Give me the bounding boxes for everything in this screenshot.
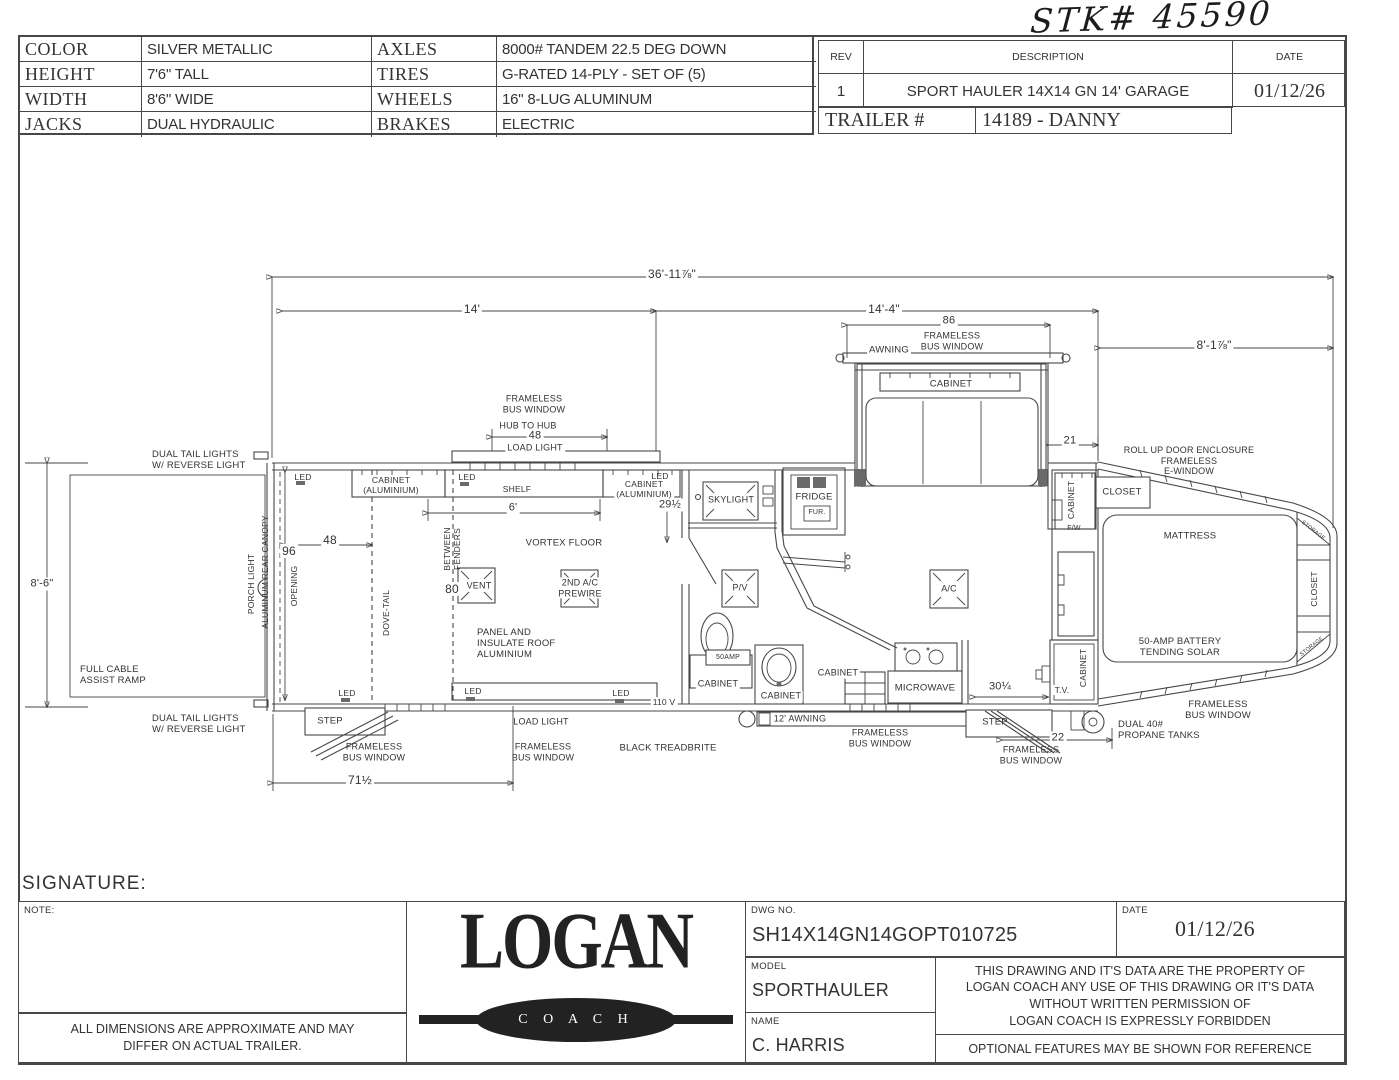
signature-label: SIGNATURE: xyxy=(22,873,147,895)
description-header: DESCRIPTION xyxy=(864,41,1233,74)
spec-label-axles: AXLES xyxy=(372,37,497,62)
note-label: NOTE: xyxy=(24,905,55,916)
logo-coach-oval: C O A C H xyxy=(476,998,676,1042)
logan-logo: LOGAN xyxy=(460,896,692,989)
spec-label-color: COLOR xyxy=(20,37,142,62)
optional-features-note: OPTIONAL FEATURES MAY BE SHOWN FOR REFER… xyxy=(935,1034,1345,1063)
disclaimer-box: ALL DIMENSIONS ARE APPROXIMATE AND MAY D… xyxy=(18,1013,407,1063)
model-label: MODEL xyxy=(751,961,786,972)
spec-label-jacks: JACKS xyxy=(20,112,142,137)
date-value: 01/12/26 xyxy=(1175,916,1255,942)
rev-description: SPORT HAULER 14X14 GN 14' GARAGE xyxy=(864,74,1233,108)
trailer-number-row: TRAILER # 14189 - DANNY xyxy=(818,107,1232,134)
date-label: DATE xyxy=(1122,905,1148,916)
spec-value-axles: 8000# TANDEM 22.5 DEG DOWN xyxy=(497,37,816,62)
spec-value-width: 8'6" WIDE xyxy=(142,87,372,112)
spec-value-brakes: ELECTRIC xyxy=(497,112,816,137)
trailer-drawing-sheet: 36'-11⅞"14'14'-4"8'-1⅞"86FRAMELESS BUS W… xyxy=(0,0,1399,1080)
model-cell: MODEL SPORTHAULER xyxy=(745,957,936,1013)
rev-header: REV xyxy=(819,41,864,74)
spec-value-wheels: 16" 8-LUG ALUMINUM xyxy=(497,87,816,112)
trailer-number-value: 14189 - DANNY xyxy=(976,108,1233,133)
name-value: C. HARRIS xyxy=(752,1035,845,1056)
spec-value-color: SILVER METALLIC xyxy=(142,37,372,62)
spec-label-wheels: WHEELS xyxy=(372,87,497,112)
spec-table: COLOR SILVER METALLIC AXLES 8000# TANDEM… xyxy=(18,35,814,135)
name-cell: NAME C. HARRIS xyxy=(745,1012,936,1063)
date-cell: DATE 01/12/26 xyxy=(1116,901,1345,957)
dwg-number-label: DWG NO. xyxy=(751,905,796,916)
note-box: NOTE: xyxy=(18,901,407,1013)
rev-number: 1 xyxy=(819,74,864,108)
spec-label-height: HEIGHT xyxy=(20,62,142,87)
spec-label-tires: TIRES xyxy=(372,62,497,87)
spec-value-height: 7'6" TALL xyxy=(142,62,372,87)
spec-label-width: WIDTH xyxy=(20,87,142,112)
logo-left-bar xyxy=(419,1015,481,1024)
revision-table: REV DESCRIPTION DATE 1 SPORT HAULER 14X1… xyxy=(818,40,1345,107)
legal-notice: THIS DRAWING AND IT'S DATA ARE THE PROPE… xyxy=(935,957,1345,1035)
name-label: NAME xyxy=(751,1016,780,1027)
spec-value-jacks: DUAL HYDRAULIC xyxy=(142,112,372,137)
date-header: DATE xyxy=(1233,41,1346,74)
model-value: SPORTHAULER xyxy=(752,980,889,1001)
dwg-number-value: SH14X14GN14GOPT010725 xyxy=(752,924,1017,947)
dwg-number-cell: DWG NO. SH14X14GN14GOPT010725 xyxy=(745,901,1117,957)
spec-value-tires: G-RATED 14-PLY - SET OF (5) xyxy=(497,62,816,87)
logo-right-bar xyxy=(671,1015,733,1024)
trailer-number-label: TRAILER # xyxy=(819,108,976,133)
spec-label-brakes: BRAKES xyxy=(372,112,497,137)
rev-date: 01/12/26 xyxy=(1233,74,1346,108)
logo-box: LOGAN C O A C H xyxy=(406,901,746,1063)
